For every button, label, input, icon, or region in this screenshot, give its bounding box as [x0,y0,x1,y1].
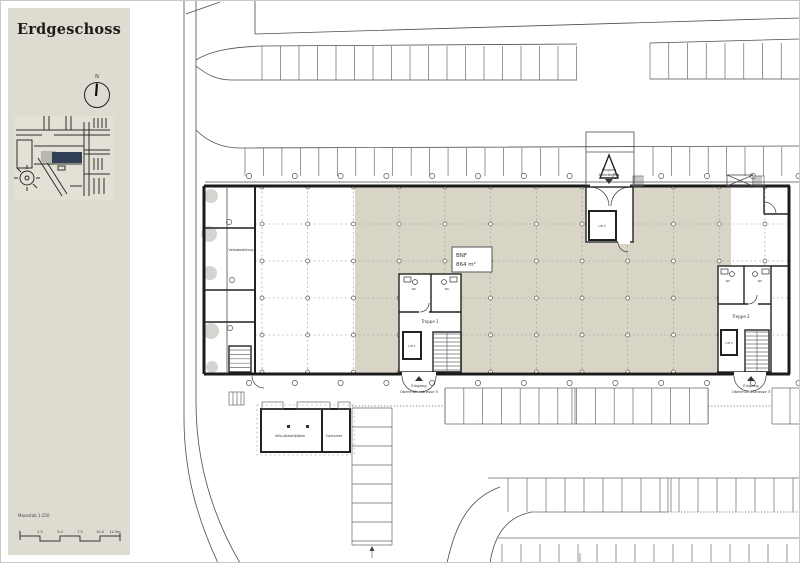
stair-2-label: Treppe 2 [731,314,750,319]
shed-bikes-label: Velo-Abstellplätze [275,434,305,438]
scale-label: Massstab 1:250 [18,513,50,518]
lift-2-label: Lift 2 [725,341,733,345]
shed-container-label: Container [326,434,343,438]
svg-text:5.0: 5.0 [57,530,62,534]
area-label-box [452,247,492,272]
highlighted-building [52,152,82,163]
bike-room-label: Veloabstellung [229,248,254,252]
svg-text:2.5: 2.5 [37,530,42,534]
north-label: N [95,74,99,80]
svg-text:WC: WC [445,287,450,291]
floorplan-sheet: Erdgeschoss N Massstab 1:250 0 2.5 5.0 [0,0,800,563]
parking-outlines [352,388,800,562]
wc-label: WC [412,287,417,291]
core-north [586,187,633,243]
svg-text:WC: WC [726,279,731,283]
entrance-sw-label: Eingang [411,383,427,388]
site-location-map [14,116,114,200]
stair-1-label: Treppe 1 [420,319,439,324]
svg-text:Obermühlestrasse 3: Obermühlestrasse 3 [732,389,771,394]
north-compass-icon: N [75,68,119,114]
building [204,132,790,405]
outbuilding [257,402,354,455]
svg-text:12.5m: 12.5m [110,530,122,534]
entrance-top-label: Eingang [602,168,617,172]
area-value: 864 m² [456,261,476,268]
page-title: Erdgeschoss [17,21,121,38]
svg-text:WC: WC [758,279,763,283]
svg-text:10.0: 10.0 [96,530,104,534]
entrance-se-label: Eingang [743,383,759,388]
svg-text:7.5: 7.5 [77,530,82,534]
svg-text:Anlieferung: Anlieferung [599,173,620,177]
svg-text:Obermühlestrasse 5: Obermühlestrasse 5 [400,389,439,394]
lift-1-label: Lift 1 [408,344,416,348]
lift-3-label: Lift 3 [598,224,606,228]
scale-bar: 0 2.5 5.0 7.5 10.0 12.5m [18,526,122,546]
legend-panel: Erdgeschoss N Massstab 1:250 0 2.5 5.0 [8,8,130,555]
area-label: BNF [456,253,467,259]
